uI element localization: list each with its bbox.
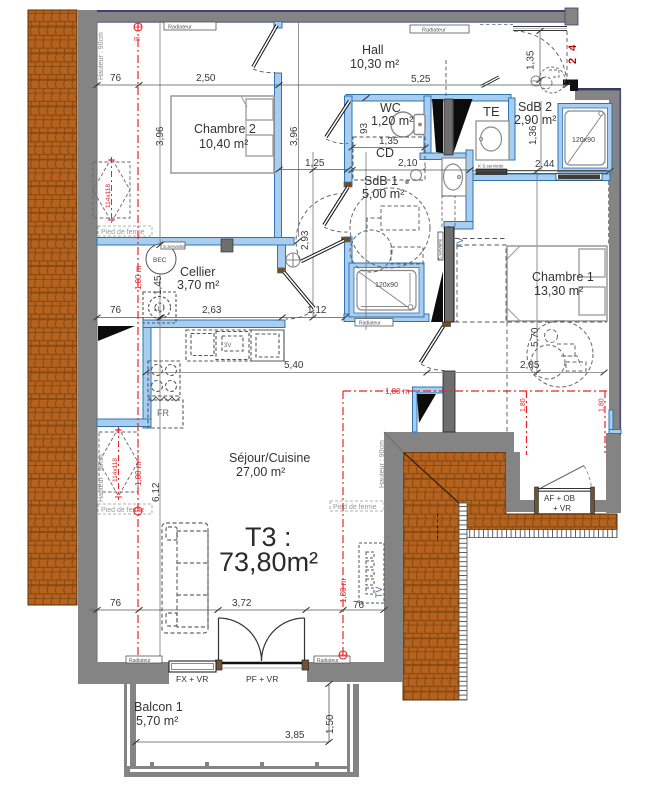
svg-text:1,25: 1,25 — [305, 158, 325, 169]
svg-text:1,80 m: 1,80 m — [134, 265, 143, 290]
svg-text:S.Serviette: S.Serviette — [163, 244, 186, 249]
svg-text:93: 93 — [359, 122, 370, 134]
svg-text:27,00 m²: 27,00 m² — [236, 465, 285, 479]
svg-text:BEC: BEC — [153, 257, 167, 264]
svg-text:5,70 m²: 5,70 m² — [136, 714, 178, 728]
svg-text:FX + VR: FX + VR — [176, 674, 208, 684]
svg-text:120x90: 120x90 — [572, 137, 595, 144]
svg-text:AF + OB: AF + OB — [544, 494, 575, 503]
svg-text:1,80: 1,80 — [599, 398, 606, 412]
svg-text:114x118: 114x118 — [112, 458, 119, 482]
svg-text:Hall: Hall — [362, 43, 384, 57]
svg-text:Chambre 2: Chambre 2 — [194, 122, 256, 136]
svg-text:SdB 1: SdB 1 — [364, 174, 398, 188]
svg-text:Radiateur: Radiateur — [422, 28, 446, 34]
svg-text:5,70: 5,70 — [530, 327, 541, 347]
svg-text:2,85: 2,85 — [520, 360, 540, 371]
svg-text:2,50: 2,50 — [196, 73, 216, 84]
svg-text:1,80 m: 1,80 m — [134, 461, 143, 486]
svg-text:+ VR: + VR — [553, 504, 571, 513]
svg-text:114x118: 114x118 — [105, 184, 112, 208]
svg-text:Hauteur : 90cm: Hauteur : 90cm — [98, 454, 105, 502]
svg-text:3,72: 3,72 — [232, 598, 252, 609]
svg-text:K S.serviette: K S.serviette — [478, 164, 504, 169]
svg-text:10,30 m²: 10,30 m² — [350, 57, 399, 71]
svg-text:Cellier: Cellier — [180, 265, 215, 279]
svg-text:TV: TV — [455, 237, 465, 249]
svg-text:PF + VR: PF + VR — [246, 674, 278, 684]
svg-text:FR: FR — [157, 408, 169, 418]
svg-text:2,90 m²: 2,90 m² — [514, 113, 556, 127]
svg-text:120x90: 120x90 — [375, 282, 398, 289]
svg-text:3V: 3V — [224, 343, 231, 349]
svg-text:TE: TE — [483, 104, 500, 119]
svg-text:76: 76 — [353, 600, 365, 611]
svg-text:76: 76 — [110, 305, 122, 316]
svg-text:Pied de ferme: Pied de ferme — [333, 504, 377, 511]
svg-text:S.serviette: S.serviette — [438, 238, 443, 260]
svg-text:3,96: 3,96 — [155, 126, 166, 146]
svg-text:m: m — [134, 36, 140, 43]
svg-text:TV: TV — [374, 586, 384, 598]
svg-text:Radiateur: Radiateur — [317, 658, 339, 664]
svg-text:1,50: 1,50 — [325, 714, 336, 734]
svg-text:Balcon 1: Balcon 1 — [134, 700, 183, 714]
svg-text:WC: WC — [380, 101, 401, 115]
svg-text:5,40: 5,40 — [284, 360, 304, 371]
svg-text:1,35: 1,35 — [379, 136, 399, 147]
svg-text:6,12: 6,12 — [151, 482, 162, 502]
svg-text:Hauteur : 90cm: Hauteur : 90cm — [379, 440, 386, 488]
svg-text:3,70 m²: 3,70 m² — [177, 278, 219, 292]
svg-text:1,80 m: 1,80 m — [339, 578, 348, 603]
svg-text:3,96: 3,96 — [289, 126, 300, 146]
svg-text:1,45: 1,45 — [153, 275, 164, 295]
svg-text:1,20 m²: 1,20 m² — [371, 114, 413, 128]
svg-text:76: 76 — [110, 73, 122, 84]
svg-text:Chambre 1: Chambre 1 — [532, 270, 594, 284]
svg-text:2,63: 2,63 — [202, 305, 222, 316]
svg-text:2 4: 2 4 — [567, 43, 579, 64]
svg-text:2,10: 2,10 — [398, 158, 418, 169]
svg-text:3,85: 3,85 — [285, 730, 305, 741]
svg-text:SdB 2: SdB 2 — [518, 100, 552, 114]
svg-text:CD: CD — [376, 146, 394, 160]
svg-text:Radiateur: Radiateur — [168, 25, 192, 31]
svg-text:1,80: 1,80 — [520, 398, 527, 412]
svg-text:5,25: 5,25 — [411, 74, 431, 85]
svg-text:Radiateur: Radiateur — [129, 658, 151, 664]
svg-text:Radiateur: Radiateur — [359, 321, 381, 327]
svg-text:1,12: 1,12 — [307, 305, 327, 316]
svg-text:1,36: 1,36 — [528, 125, 539, 145]
svg-text:Séjour/Cuisine: Séjour/Cuisine — [229, 451, 310, 465]
svg-text:LL: LL — [154, 306, 162, 313]
svg-text:10,40 m²: 10,40 m² — [199, 137, 248, 151]
svg-text:73,80m²: 73,80m² — [219, 547, 318, 577]
svg-text:2,44: 2,44 — [535, 159, 555, 170]
svg-text:13,30 m²: 13,30 m² — [534, 284, 583, 298]
svg-text:2,93: 2,93 — [300, 230, 311, 250]
svg-text:1,80 m: 1,80 m — [385, 387, 410, 396]
svg-text:76: 76 — [110, 598, 122, 609]
svg-text:Hauteur : 90cm: Hauteur : 90cm — [98, 32, 105, 80]
svg-text:1,35: 1,35 — [526, 50, 537, 70]
